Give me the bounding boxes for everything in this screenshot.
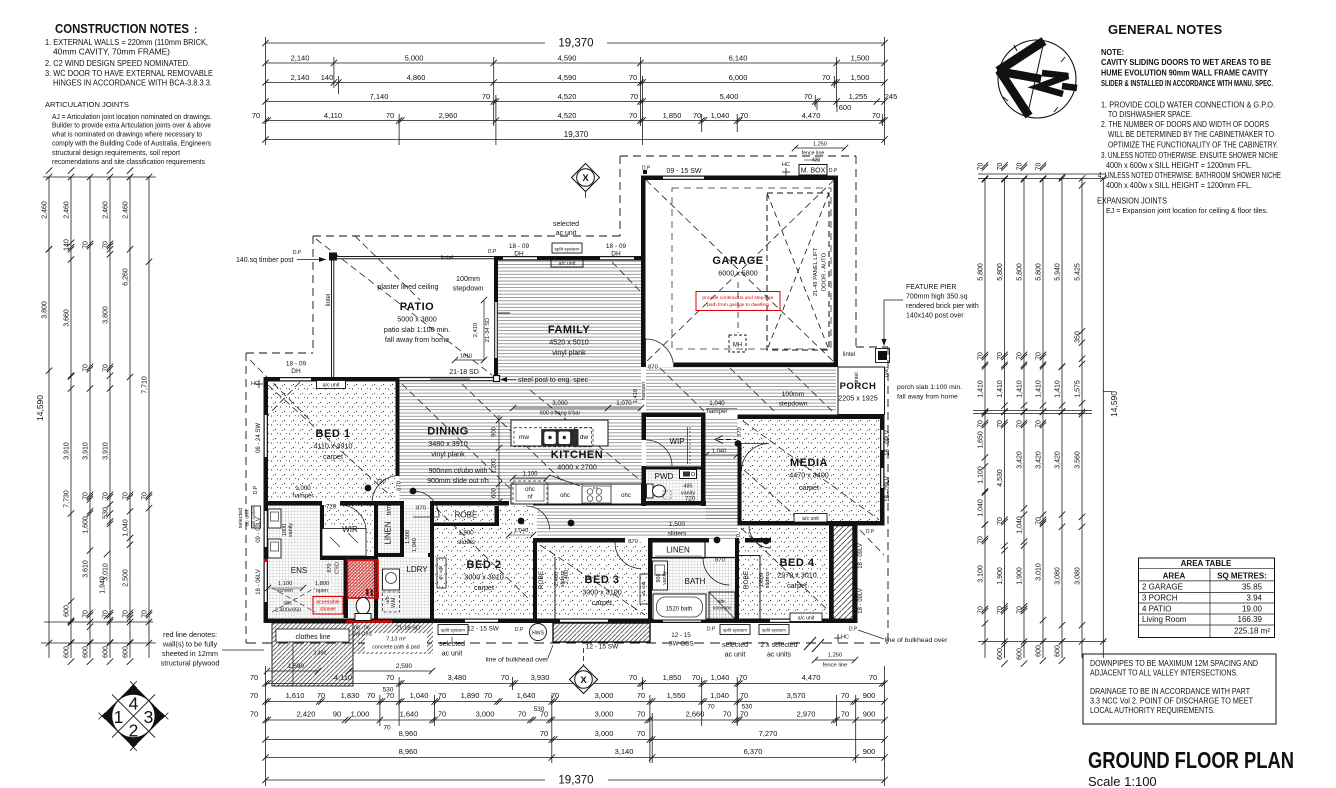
svg-text:a/c unit: a/c unit [438, 565, 443, 580]
svg-text:19.00: 19.00 [1242, 604, 1263, 613]
svg-text:HWS: HWS [532, 631, 545, 637]
svg-text:AREA: AREA [1163, 571, 1186, 580]
svg-text:2,400x950: 2,400x950 [275, 608, 301, 614]
svg-text:3,000: 3,000 [476, 710, 495, 719]
svg-text:900mm slide out r/h: 900mm slide out r/h [427, 478, 489, 485]
svg-text:7.13 m²: 7.13 m² [386, 637, 406, 643]
svg-text:line of bulkhead over: line of bulkhead over [885, 637, 948, 644]
svg-text:140x140 post over: 140x140 post over [906, 313, 964, 320]
svg-text:70: 70 [740, 710, 748, 719]
svg-text:EXPANSION JOINTS: EXPANSION JOINTS [1097, 197, 1167, 206]
svg-text:6,260: 6,260 [123, 268, 130, 286]
svg-text:700mm high 350.sq: 700mm high 350.sq [906, 294, 968, 301]
svg-text:selected: selected [553, 221, 579, 228]
svg-text:70: 70 [693, 111, 701, 120]
svg-text:DH: DH [514, 251, 524, 258]
svg-text:W.M.: W.M. [391, 596, 397, 608]
svg-text:5,800: 5,800 [1017, 263, 1024, 281]
svg-text:DOOR - AUTO: DOOR - AUTO [822, 252, 828, 291]
svg-text:18 - 06LV: 18 - 06LV [256, 569, 262, 595]
svg-text:70: 70 [637, 691, 645, 700]
svg-text:4520 x 5010: 4520 x 5010 [549, 338, 589, 347]
svg-text:4,590: 4,590 [558, 73, 577, 82]
svg-text:GENERAL NOTES: GENERAL NOTES [1108, 22, 1222, 37]
svg-text:12 - 15 SW: 12 - 15 SW [467, 626, 499, 633]
svg-text:720: 720 [685, 496, 696, 503]
svg-text:8,960: 8,960 [399, 747, 418, 756]
svg-text:3,910: 3,910 [64, 442, 71, 460]
svg-text:70: 70 [250, 710, 258, 719]
svg-text:LDRY: LDRY [406, 565, 428, 574]
svg-text:40mm CAVITY, 70mm FRAME): 40mm CAVITY, 70mm FRAME) [53, 48, 170, 57]
svg-text:70: 70 [723, 710, 731, 719]
svg-text:2,500: 2,500 [123, 569, 130, 587]
svg-text:1. EXTERNAL WALLS = 220mm (110: 1. EXTERNAL WALLS = 220mm (110mm BRICK, [45, 38, 208, 47]
svg-text:2,140: 2,140 [291, 54, 310, 63]
svg-text:4: 4 [129, 694, 139, 714]
svg-text:BED 1: BED 1 [316, 428, 351, 440]
svg-text:1,040: 1,040 [1017, 516, 1024, 534]
svg-text:comply with the Building Code: comply with the Building Code of Austral… [52, 141, 211, 148]
svg-text:WIP: WIP [669, 437, 684, 446]
svg-text:7,710: 7,710 [142, 376, 149, 394]
svg-text:70: 70 [869, 673, 877, 682]
svg-text:870: 870 [648, 365, 658, 371]
svg-text:4000 x 2700: 4000 x 2700 [557, 463, 597, 472]
svg-text:shr.: shr. [283, 601, 293, 607]
svg-text:3,560: 3,560 [1075, 451, 1082, 469]
svg-text:1,410: 1,410 [997, 380, 1004, 398]
svg-text:carpet: carpet [799, 483, 819, 492]
svg-text:3,080: 3,080 [1055, 567, 1062, 585]
svg-text:lintel: lintel [326, 294, 332, 306]
svg-text:lintel: lintel [843, 352, 855, 358]
svg-text:D.P: D.P [707, 627, 716, 633]
svg-text:carpet: carpet [592, 598, 612, 607]
svg-text:plaster lined ceiling: plaster lined ceiling [377, 282, 438, 291]
svg-text:70: 70 [438, 691, 446, 700]
svg-text:09 - 15 SW: 09 - 15 SW [666, 168, 701, 175]
svg-text:166.39: 166.39 [1238, 615, 1263, 624]
svg-text:D.P: D.P [829, 168, 838, 174]
svg-text:70: 70 [841, 710, 849, 719]
svg-text:CONSTRUCTION NOTES: CONSTRUCTION NOTES [55, 22, 189, 36]
svg-text:vinyl plank: vinyl plank [552, 348, 586, 357]
svg-text:4 PATIO: 4 PATIO [1142, 604, 1172, 613]
svg-text:ohc: ohc [525, 487, 535, 493]
svg-text:14,590: 14,590 [35, 395, 45, 421]
svg-text:HC: HC [841, 635, 849, 641]
svg-text:420: 420 [812, 158, 821, 164]
svg-text:5,800: 5,800 [978, 263, 985, 281]
svg-text:70: 70 [739, 673, 747, 682]
svg-text:600: 600 [103, 646, 110, 658]
svg-text:ENS: ENS [291, 566, 307, 575]
svg-text:5,400: 5,400 [720, 92, 739, 101]
svg-text:lintel: lintel [854, 372, 860, 383]
svg-text:shower: shower [320, 607, 336, 613]
svg-text:70: 70 [252, 111, 260, 120]
svg-text:18 - 09LV: 18 - 09LV [885, 476, 891, 502]
svg-text:3,480: 3,480 [448, 673, 467, 682]
svg-text:HC: HC [782, 162, 790, 168]
svg-text:870: 870 [327, 563, 333, 572]
svg-text:12 - 15: 12 - 15 [671, 632, 691, 639]
svg-text:21-18 SD: 21-18 SD [396, 626, 421, 632]
svg-text:225.18 m²: 225.18 m² [1234, 626, 1270, 635]
svg-text:1,890: 1,890 [461, 691, 480, 700]
svg-text:70: 70 [841, 691, 849, 700]
svg-text:D.P: D.P [849, 627, 858, 633]
svg-text:carpet: carpet [323, 452, 343, 461]
svg-text:M. BOX: M. BOX [801, 168, 826, 175]
svg-text:70: 70 [822, 73, 830, 82]
svg-text:WILL BE DETERMINED BY THE CABI: WILL BE DETERMINED BY THE CABINETMAKER T… [1108, 130, 1274, 139]
svg-text:1,040: 1,040 [123, 519, 130, 537]
svg-text:18 - 09LV: 18 - 09LV [858, 588, 864, 614]
svg-text:4,860: 4,860 [407, 73, 426, 82]
svg-text:1,410: 1,410 [1017, 380, 1024, 398]
svg-text:3,910: 3,910 [103, 442, 110, 460]
svg-text:a/c unit: a/c unit [559, 261, 576, 267]
svg-text:5,940: 5,940 [1055, 263, 1062, 281]
svg-text:1,600: 1,600 [83, 516, 90, 534]
svg-text:2970 x 3010: 2970 x 3010 [777, 571, 817, 580]
svg-text:70: 70 [386, 691, 394, 700]
svg-text:12 - 15 SW: 12 - 15 SW [586, 644, 619, 651]
svg-text:1,200: 1,200 [492, 458, 498, 474]
svg-text:600: 600 [83, 646, 90, 658]
svg-text:D.P: D.P [515, 627, 524, 633]
svg-text:70: 70 [367, 691, 375, 700]
svg-text:MH: MH [733, 343, 742, 349]
svg-text:split system: split system [441, 628, 465, 633]
svg-text:WIR: WIR [342, 525, 358, 534]
svg-text:870: 870 [715, 558, 725, 564]
svg-text:BATH: BATH [685, 577, 706, 586]
svg-text:sheeted in 12mm: sheeted in 12mm [162, 649, 218, 658]
svg-text:2,460: 2,460 [64, 201, 71, 219]
svg-text:DOWNPIPES TO BE MAXIMUM 12M SP: DOWNPIPES TO BE MAXIMUM 12M SPACING AND [1090, 659, 1258, 668]
svg-text:recomendations and site classi: recomendations and site classification r… [52, 159, 205, 166]
svg-text:MEDIA: MEDIA [790, 457, 828, 469]
svg-text:red line denotes:: red line denotes: [163, 630, 217, 639]
svg-text:2. C2 WIND DESIGN SPEED NOMINA: 2. C2 WIND DESIGN SPEED NOMINATED. [45, 59, 190, 68]
svg-text:DH: DH [611, 251, 621, 258]
svg-text:2,960: 2,960 [439, 111, 458, 120]
svg-text:1,040: 1,040 [514, 528, 529, 534]
svg-text:3,420: 3,420 [1036, 451, 1043, 469]
svg-text:3,010: 3,010 [103, 563, 110, 581]
svg-text:6,140: 6,140 [729, 54, 748, 63]
svg-text:4. UNLESS NOTED OTHERWISE. BAT: 4. UNLESS NOTED OTHERWISE. BATHROOM SHOW… [1098, 171, 1281, 180]
svg-text:70: 70 [629, 673, 637, 682]
svg-text:3,000: 3,000 [595, 691, 614, 700]
svg-text:sliders: sliders [457, 539, 475, 546]
svg-text:FEATURE PIER: FEATURE PIER [906, 284, 956, 291]
svg-text:600: 600 [839, 103, 852, 112]
svg-text:18 - 09: 18 - 09 [509, 243, 530, 250]
svg-text:ROBE: ROBE [538, 570, 545, 589]
svg-text:sliders: sliders [668, 531, 688, 538]
svg-text:patio slab 1:100 min.: patio slab 1:100 min. [384, 325, 450, 334]
svg-text:CAVITY SLIDING DOORS TO WET AR: CAVITY SLIDING DOORS TO WET AREAS TO BE [1101, 58, 1271, 67]
svg-text:hamper: hamper [641, 382, 647, 401]
svg-text:HINGES IN ACCORDANCE WITH BCA-: HINGES IN ACCORDANCE WITH BCA-3.8.3.3. [53, 79, 212, 88]
svg-text:2,460: 2,460 [42, 201, 49, 219]
svg-text:4,470: 4,470 [802, 111, 821, 120]
svg-text:530: 530 [534, 706, 545, 713]
svg-text:ac unit: ac unit [245, 509, 251, 526]
svg-text:1,500: 1,500 [405, 530, 411, 544]
svg-text:70: 70 [518, 710, 526, 719]
svg-text:3,420: 3,420 [1055, 451, 1062, 469]
svg-text:GROUND FLOOR PLAN: GROUND FLOOR PLAN [1088, 747, 1294, 773]
svg-text:4,520: 4,520 [558, 111, 577, 120]
svg-text:70: 70 [386, 111, 394, 120]
svg-text:1,040: 1,040 [410, 691, 429, 700]
svg-text:5000 x 3800: 5000 x 3800 [397, 315, 437, 324]
svg-text:3,660: 3,660 [64, 309, 71, 327]
svg-text:split system: split system [554, 247, 579, 253]
svg-text:3,000: 3,000 [595, 729, 614, 738]
svg-text:70: 70 [637, 729, 645, 738]
svg-text:1,800: 1,800 [315, 581, 330, 587]
svg-text:fall away from home: fall away from home [385, 335, 449, 344]
svg-text:fall away from home: fall away from home [897, 394, 958, 401]
svg-text:140: 140 [321, 73, 334, 82]
svg-text:KITCHEN: KITCHEN [551, 449, 603, 461]
svg-text:1,550: 1,550 [667, 691, 686, 700]
svg-text:1,575: 1,575 [1075, 380, 1082, 398]
svg-text:DINING: DINING [427, 426, 469, 438]
svg-text:D.P: D.P [488, 249, 497, 255]
svg-text:accessible: accessible [316, 600, 340, 606]
svg-text:70: 70 [383, 725, 391, 732]
svg-text:stepdown: stepdown [778, 401, 807, 408]
svg-text:720: 720 [326, 504, 337, 511]
svg-text:35.85: 35.85 [1242, 582, 1263, 591]
svg-text:1,640: 1,640 [517, 691, 536, 700]
svg-text:DH: DH [291, 368, 301, 375]
svg-text:5,425: 5,425 [1075, 263, 1082, 281]
svg-text:PATIO: PATIO [400, 301, 434, 313]
svg-text:530: 530 [103, 507, 110, 519]
svg-text:ohc: ohc [621, 493, 631, 499]
svg-text:6,370: 6,370 [744, 747, 763, 756]
svg-text:fence line: fence line [823, 663, 848, 669]
svg-text:vinyl plank: vinyl plank [431, 450, 465, 459]
svg-text:what is nominated on drawings: what is nominated on drawings where nece… [51, 132, 202, 139]
svg-text:ac unit: ac unit [725, 652, 746, 659]
svg-text:600: 600 [492, 487, 498, 498]
svg-text:1,000: 1,000 [295, 485, 311, 492]
svg-text:1,000: 1,000 [351, 710, 370, 719]
svg-text:steel post to eng. spec: steel post to eng. spec [518, 377, 589, 384]
svg-text:1,500: 1,500 [669, 521, 686, 528]
svg-text:21-18 SD: 21-18 SD [449, 369, 479, 376]
svg-text:1520 bath: 1520 bath [666, 607, 693, 613]
svg-text:3.3 NCC Vol 2. POINT OF DISCHA: 3.3 NCC Vol 2. POINT OF DISCHARGE TO MEE… [1090, 697, 1253, 706]
svg-text:21-34 SD: 21-34 SD [485, 318, 491, 343]
svg-text:NOTE:: NOTE: [1101, 48, 1124, 57]
svg-text:400h x 400w x SILL HEIGHT = 12: 400h x 400w x SILL HEIGHT = 1200mm FFL. [1106, 181, 1252, 190]
svg-text:3,610: 3,610 [83, 560, 90, 578]
svg-text:600: 600 [997, 648, 1004, 660]
svg-text:3. UNLESS NOTED OTHERWISE. ENS: 3. UNLESS NOTED OTHERWISE. ENSUITE SHOWE… [1101, 151, 1278, 160]
svg-text:70: 70 [250, 691, 258, 700]
svg-text:400h x 600w x SILL HEIGHT = 12: 400h x 600w x SILL HEIGHT = 1200mm FFL. [1106, 161, 1252, 170]
svg-text:mw: mw [519, 434, 529, 441]
svg-text::: : [194, 25, 197, 36]
svg-text:concrete path & pad: concrete path & pad [372, 645, 419, 651]
svg-text:70: 70 [540, 729, 548, 738]
svg-text:TO DISHWASHER SPACE.: TO DISHWASHER SPACE. [1108, 110, 1192, 119]
svg-text:BED 4: BED 4 [780, 557, 815, 569]
svg-text:ARTICULATION JOINTS: ARTICULATION JOINTS [45, 100, 129, 109]
svg-text:3,570: 3,570 [787, 691, 806, 700]
svg-text:18 - 09: 18 - 09 [286, 361, 307, 368]
svg-text:ROBE: ROBE [455, 511, 478, 520]
svg-text:ROBE: ROBE [743, 570, 750, 589]
svg-text:1,410: 1,410 [978, 380, 985, 398]
svg-text:2,140: 2,140 [291, 73, 310, 82]
svg-text:70: 70 [707, 704, 715, 711]
svg-text:SW OBS: SW OBS [668, 641, 693, 648]
svg-text:AREA TABLE: AREA TABLE [1181, 559, 1232, 568]
svg-text:2 GARAGE: 2 GARAGE [1142, 582, 1183, 591]
svg-text:2205 x 1925: 2205 x 1925 [838, 394, 878, 403]
svg-text:a/c unit: a/c unit [802, 516, 819, 522]
svg-text:LINEN: LINEN [384, 522, 393, 545]
svg-text:1,100: 1,100 [978, 466, 985, 484]
svg-text:70: 70 [629, 111, 637, 120]
svg-text:BED 3: BED 3 [585, 574, 620, 586]
svg-text:900: 900 [863, 747, 876, 756]
svg-text:X: X [582, 173, 589, 184]
svg-text:09 - 03LV: 09 - 03LV [256, 517, 262, 543]
svg-text:Scale 1:100: Scale 1:100 [1088, 774, 1157, 788]
svg-text:split system: split system [251, 505, 256, 528]
svg-text:2 x selected: 2 x selected [760, 642, 797, 649]
svg-text:70: 70 [250, 673, 258, 682]
svg-text:870: 870 [397, 481, 403, 491]
svg-text:rendered brick pier with: rendered brick pier with [906, 303, 979, 310]
svg-text:2,590: 2,590 [396, 663, 413, 670]
svg-text:600: 600 [123, 646, 130, 658]
svg-text:3480 x 3910: 3480 x 3910 [428, 439, 468, 448]
svg-text:1,040: 1,040 [412, 538, 418, 552]
svg-text:SQ METRES:: SQ METRES: [1217, 571, 1267, 580]
svg-text:6000 x 5800: 6000 x 5800 [718, 269, 758, 278]
svg-text:870: 870 [736, 534, 742, 544]
svg-text:vanity: vanity [662, 571, 668, 585]
svg-text:1,900: 1,900 [1017, 567, 1024, 585]
svg-text:70: 70 [501, 673, 509, 682]
svg-text:1,850: 1,850 [663, 673, 682, 682]
svg-text:4,530: 4,530 [997, 469, 1004, 487]
svg-text:1,490: 1,490 [314, 651, 327, 657]
svg-text:3,010: 3,010 [1036, 563, 1043, 581]
svg-text:1,040: 1,040 [709, 400, 725, 407]
svg-text:screen: screen [277, 588, 294, 594]
svg-text:1,100: 1,100 [522, 472, 538, 478]
svg-text:ohc: ohc [560, 493, 570, 499]
svg-text:70: 70 [629, 73, 637, 82]
svg-text:100mm: 100mm [782, 391, 805, 398]
svg-text:ADJACENT TO ALL VALLEY INTERSE: ADJACENT TO ALL VALLEY INTERSECTIONS. [1090, 669, 1238, 678]
svg-text:900: 900 [863, 710, 876, 719]
svg-text:70: 70 [317, 691, 325, 700]
svg-text:LINEN: LINEN [666, 546, 690, 555]
svg-text:70: 70 [740, 691, 748, 700]
svg-text:870: 870 [737, 427, 743, 437]
svg-text:2,460: 2,460 [123, 201, 130, 219]
svg-text:06 - 24 SW: 06 - 24 SW [256, 423, 262, 453]
svg-text:hamper: hamper [707, 408, 728, 415]
svg-text:70: 70 [386, 673, 394, 682]
svg-text:18 - 09LV: 18 - 09LV [885, 430, 891, 456]
svg-text:600: 600 [64, 605, 71, 617]
svg-text:1,500: 1,500 [851, 73, 870, 82]
svg-text:hamper: hamper [293, 493, 314, 500]
svg-text:2,420: 2,420 [297, 710, 316, 719]
svg-text:3,910: 3,910 [83, 442, 90, 460]
svg-text:4470 x 3400: 4470 x 3400 [789, 471, 829, 480]
svg-text:600: 600 [64, 646, 71, 658]
svg-text:b/m: b/m [387, 505, 393, 515]
svg-text:900: 900 [492, 426, 498, 437]
svg-text:selected: selected [722, 642, 748, 649]
svg-text:Living Room: Living Room [1142, 615, 1187, 624]
svg-text:1,040: 1,040 [978, 499, 985, 517]
svg-text:2,970: 2,970 [797, 710, 816, 719]
svg-text:900x900: 900x900 [713, 606, 732, 612]
svg-text:provide continuous and step-fr: provide continuous and step-free [702, 295, 774, 301]
svg-text:600: 600 [1055, 645, 1062, 657]
svg-text:structural plywood: structural plywood [161, 659, 220, 668]
svg-text:90: 90 [333, 710, 341, 719]
svg-text:1,040: 1,040 [711, 111, 730, 120]
svg-text:900: 900 [863, 691, 876, 700]
svg-text:selected: selected [238, 508, 244, 529]
svg-text:wall(s) to be fully: wall(s) to be fully [162, 640, 218, 649]
svg-text:D.P: D.P [866, 529, 875, 535]
svg-text:1,500: 1,500 [851, 54, 870, 63]
svg-text:D.P: D.P [293, 250, 302, 256]
svg-text:3,080: 3,080 [1075, 567, 1082, 585]
svg-text:a/c unit: a/c unit [641, 581, 646, 596]
svg-text:3,000: 3,000 [552, 400, 568, 407]
svg-text:18 - 09LV: 18 - 09LV [858, 543, 864, 569]
svg-text:a/c unit: a/c unit [798, 616, 815, 622]
svg-text:1,250: 1,250 [813, 142, 827, 148]
svg-text:100mm: 100mm [456, 274, 480, 283]
svg-text:7,140: 7,140 [370, 92, 389, 101]
svg-text:21-48 PANEL LIFT: 21-48 PANEL LIFT [813, 247, 819, 296]
svg-text:ac unit: ac unit [442, 651, 463, 658]
svg-text:3,800: 3,800 [103, 306, 110, 324]
svg-text:5,800: 5,800 [997, 263, 1004, 281]
svg-text:7,730: 7,730 [64, 490, 71, 508]
svg-text:70: 70 [438, 710, 446, 719]
svg-text:140.sq timber post: 140.sq timber post [236, 257, 294, 264]
svg-text:ac unit: ac unit [556, 230, 577, 237]
svg-text:2. THE NUMBER OF DOORS AND WID: 2. THE NUMBER OF DOORS AND WIDTH OF DOOR… [1101, 120, 1269, 129]
svg-text:485: 485 [683, 484, 692, 490]
svg-text:1,255: 1,255 [849, 92, 868, 101]
svg-text:SW OBS: SW OBS [352, 632, 373, 638]
